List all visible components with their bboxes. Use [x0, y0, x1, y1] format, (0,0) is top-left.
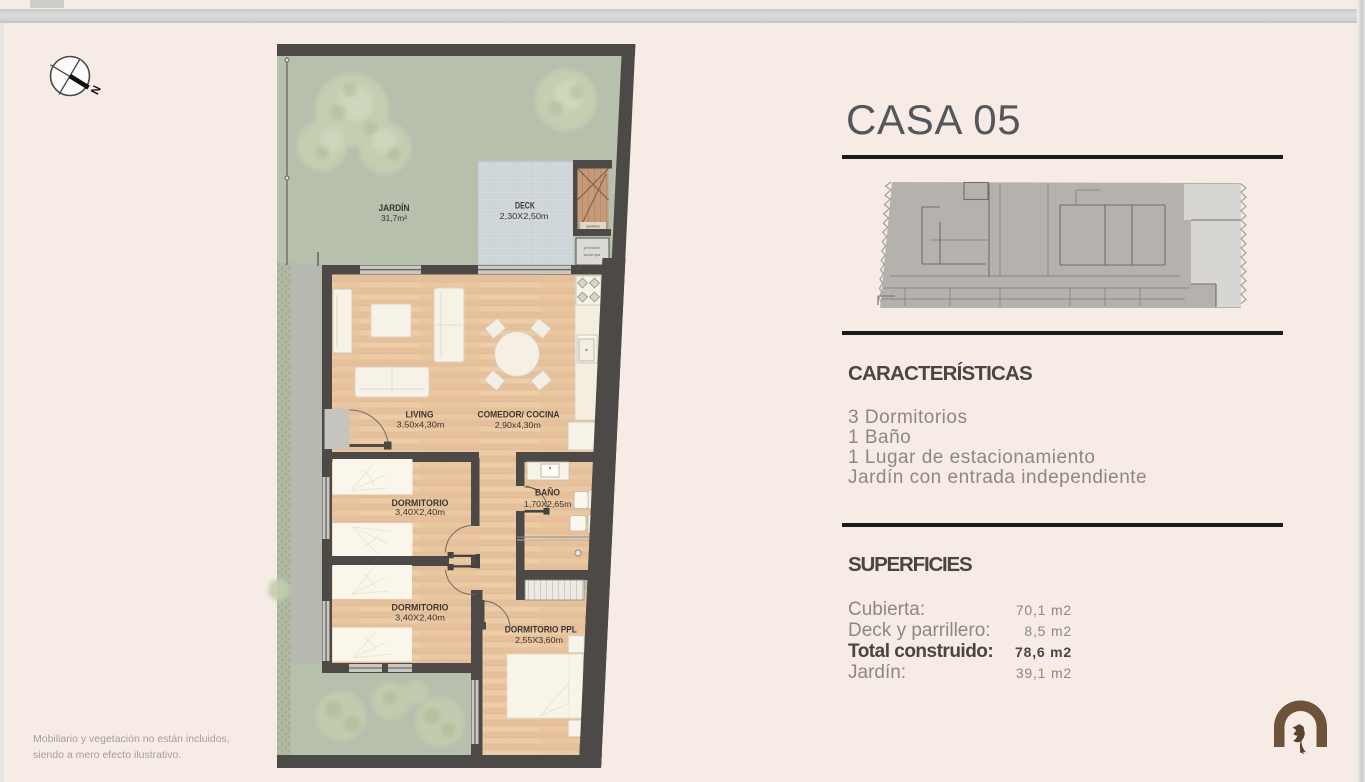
svg-text:3,50x4,30m: 3,50x4,30m [397, 421, 445, 430]
svg-text:DECK: DECK [515, 201, 535, 211]
svg-text:2,90x4,30m: 2,90x4,30m [495, 421, 541, 430]
svg-text:previsión: previsión [584, 245, 600, 250]
svg-text:2,55X3,60m: 2,55X3,60m [515, 636, 563, 645]
svg-text:3,40X2,40m: 3,40X2,40m [395, 614, 445, 623]
svg-text:2,30X2,50m: 2,30X2,50m [500, 212, 549, 221]
svg-text:3,40X2,40m: 3,40X2,40m [395, 508, 445, 517]
svg-text:N: N [88, 83, 102, 96]
svg-text:31,7m²: 31,7m² [381, 214, 407, 223]
svg-text:DORMITORIO: DORMITORIO [392, 603, 449, 613]
svg-text:COMEDOR/ COCINA: COMEDOR/ COCINA [478, 410, 560, 420]
svg-text:DORMITORIO: DORMITORIO [392, 498, 449, 508]
svg-text:BAÑO: BAÑO [535, 488, 560, 498]
svg-text:1,70X2,65m: 1,70X2,65m [524, 500, 572, 509]
svg-text:JARDÍN: JARDÍN [379, 203, 410, 213]
svg-text:lavarropa: lavarropa [584, 252, 601, 257]
svg-text:DORMITORIO PPL: DORMITORIO PPL [505, 625, 577, 635]
svg-text:LIVING: LIVING [406, 410, 434, 420]
svg-text:parrillero: parrillero [586, 225, 600, 229]
